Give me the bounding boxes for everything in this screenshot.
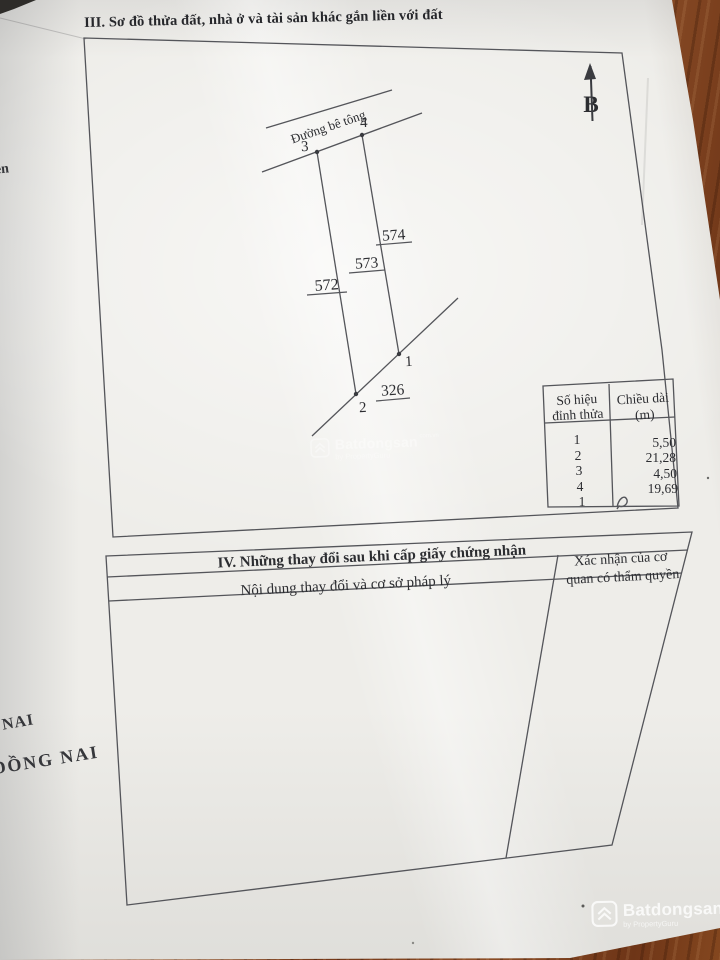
parcel-label-573: 573 [354, 254, 379, 273]
plot-diagram: B Đường bê tông 3 4 1 2 572 573 574 326 … [0, 0, 720, 960]
parcel-label-572: 572 [314, 276, 339, 295]
vertex-label-2: 2 [359, 400, 367, 416]
vertex-table-cell: 1 [574, 432, 581, 447]
parcel-label-326: 326 [380, 381, 405, 400]
vertex-table-cell: 4 [577, 479, 584, 494]
batdongsan-logo-icon [310, 438, 331, 463]
section4-col1-header: Nội dung thay đổi và cơ sở pháp lý [240, 573, 452, 599]
speck [707, 477, 709, 479]
vertex-table-cell: 3 [576, 463, 583, 478]
watermark-center: Batdongsan com.vn by PropertyGuru [310, 434, 440, 462]
vertex-table-cell: 1 [579, 494, 586, 509]
vertex-table-header-col2-line1: Chiều dài [616, 390, 669, 408]
dark-corner-mark [0, 0, 36, 14]
watermark-brand: Batdongsan [623, 900, 720, 919]
watermark-byline: by PropertyGuru [623, 919, 720, 929]
speck [412, 942, 414, 944]
paper-crease [642, 78, 648, 225]
vertex-label-4: 4 [360, 115, 369, 131]
vertex-table-cell: 21,28 [646, 450, 677, 465]
section4-column-line [506, 555, 558, 858]
watermark-domain: com.vn [419, 433, 439, 440]
vertex-table-column-line [609, 384, 613, 506]
watermark-brand: Batdongsan [335, 435, 418, 452]
vertex-label-3: 3 [301, 139, 309, 155]
speck [582, 905, 585, 908]
handwritten-mark [617, 497, 627, 509]
section4-col2-header-line2: quan có thẩm quyền [566, 567, 680, 588]
photo-of-land-certificate: ên NAI ĐỒNG NAI III. Sơ đồ thửa đất, nhà… [0, 0, 720, 960]
batdongsan-logo-icon [591, 900, 619, 932]
vertex-table-header-col2-line2: (m) [635, 407, 655, 423]
vertex-table-cell: 19,69 [648, 481, 679, 496]
section4-heading: IV. Những thay đổi sau khi cấp giấy chứn… [217, 543, 527, 572]
watermark-corner: Batdongsan com.vn by PropertyGuru [591, 897, 720, 931]
vertex-table-cell: 4,50 [653, 466, 677, 481]
vertex-table-cell: 2 [575, 448, 582, 463]
vertex-table-header-col1-line2: đỉnh thửa [552, 406, 604, 424]
parcel-boundary-bottom [312, 298, 458, 436]
section4-col2-header-line1: Xác nhận của cơ [574, 550, 669, 570]
parcel-label-574: 574 [381, 226, 406, 245]
vertex-label-1: 1 [405, 354, 413, 370]
underlying-page-edge [0, 18, 86, 39]
north-arrow-head-icon [584, 63, 596, 80]
vertex-table-cell: 5,50 [652, 435, 676, 450]
